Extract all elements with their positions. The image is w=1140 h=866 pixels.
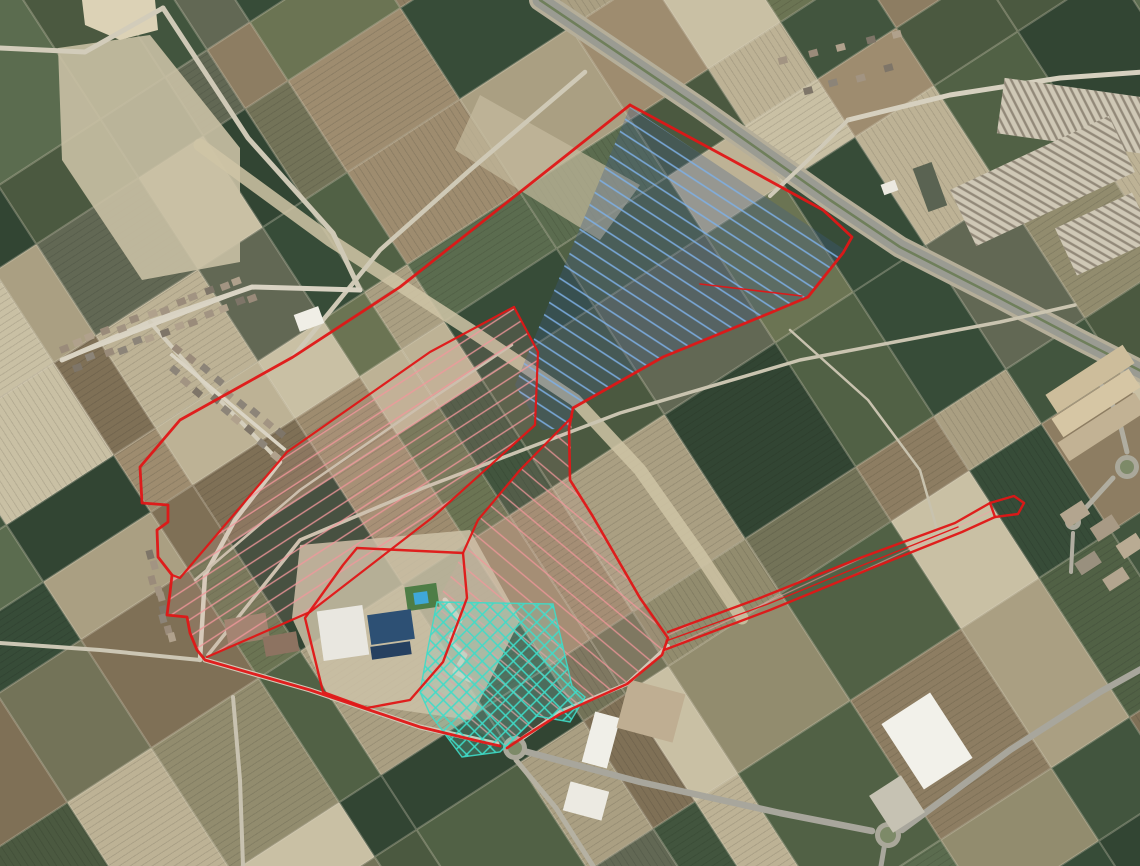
village-row-1-house (84, 332, 95, 342)
pool-main (367, 609, 415, 645)
urbanization-rows (1055, 192, 1140, 275)
warehouse-south-1 (582, 712, 621, 769)
village-row-1-house (72, 337, 83, 347)
village-row-1-house (204, 309, 215, 319)
village-row-1-house (129, 314, 140, 324)
village-row-2-house (180, 376, 191, 387)
west-junction-road (0, 643, 200, 660)
village-row-3-house (145, 549, 154, 560)
village-row-2-house (263, 418, 274, 429)
town-block-4 (1074, 551, 1102, 576)
village-row-3-house (167, 632, 176, 643)
village-row-1-house (204, 285, 215, 295)
village-row-2-house (192, 387, 203, 398)
village-row-2-house (169, 365, 180, 376)
villas-northeast-house (892, 30, 903, 39)
track-east (790, 330, 940, 540)
village-row-1-house (187, 292, 198, 302)
yard-tan (617, 679, 686, 742)
villas-northeast-house (835, 43, 846, 52)
village-row-1-house (132, 336, 143, 346)
village-row-1-house (147, 309, 158, 319)
corridor-end-loop (990, 496, 1024, 517)
villas-northeast-house (778, 56, 789, 65)
bottom-left-road (233, 697, 243, 866)
roundabout-east-island (1120, 460, 1134, 474)
corridor-upper-line (668, 503, 990, 632)
warehouse-right (881, 692, 972, 789)
village-row-1-house (72, 363, 83, 373)
village-row-3-house (156, 591, 165, 602)
village-row-2-house (220, 405, 231, 416)
village-row-1-house (231, 277, 242, 287)
village-row-2-house (275, 428, 286, 439)
aerial-map-canvas[interactable] (0, 0, 1140, 866)
village-row-2-house (249, 407, 260, 418)
village-row-1-house (104, 347, 115, 357)
map-feature-overlay (0, 0, 1140, 866)
town-block-5 (1102, 567, 1130, 592)
village-row-2-street (171, 354, 286, 450)
town-block-2 (1090, 514, 1121, 542)
village-row-1-house (117, 346, 128, 356)
villas-northeast-house (828, 78, 839, 87)
interchange-3 (1071, 533, 1073, 572)
village-row-1-street (62, 286, 253, 359)
yard-right (869, 775, 925, 833)
village-row-1-house (218, 304, 229, 314)
urbanization-northeast (950, 78, 1140, 276)
south-road-2 (881, 848, 884, 866)
village-row-2-house (213, 375, 224, 386)
village-row-1-house (176, 297, 187, 307)
village-row-3-house (148, 575, 157, 586)
long-shed-ne (913, 162, 948, 212)
village-row-1-house (100, 326, 111, 336)
village-row-1-house (247, 294, 258, 304)
village-row-1-house (235, 296, 246, 306)
pool-small (413, 591, 429, 605)
warehouse-south-2 (563, 781, 609, 820)
town-block-3 (1116, 533, 1140, 559)
white-building-ne (881, 180, 899, 195)
village-row-3-house (150, 560, 159, 571)
villas-northeast-house (866, 35, 877, 44)
sports-hall (317, 605, 370, 661)
village-row-1-house (187, 318, 198, 328)
village-row-1-house (174, 321, 185, 331)
villas-northeast-house (883, 63, 894, 72)
village-row-1-house (220, 281, 231, 291)
villas-northeast-house (808, 49, 819, 58)
village-row-2-house (199, 363, 210, 374)
white-building-village (294, 306, 325, 332)
village-row-1-house (85, 352, 96, 362)
village-row-1-house (144, 333, 155, 343)
village-row-1-house (59, 344, 70, 354)
villas-northeast-house (855, 73, 866, 82)
villas-northeast-house (803, 86, 814, 95)
